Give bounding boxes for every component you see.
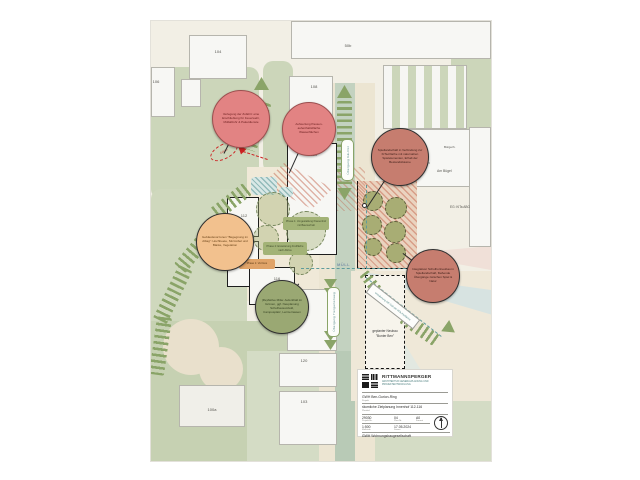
fence-line (366, 185, 367, 269)
building-number: 108 (305, 84, 323, 89)
firm-logo (362, 374, 378, 388)
annotation-text: Integrativer Schulhortneubau in Spiellan… (407, 263, 459, 289)
site-plan-sheet: 104 106 50b 108 110 112 114 116 118 120 … (150, 20, 492, 462)
date: 17.05.2024 (394, 425, 411, 429)
tree (362, 215, 382, 235)
plan-number-label: Plan-Nr. (394, 420, 402, 422)
phase-box-text: Phase 1: Vorzone (247, 262, 267, 265)
path-label-text: Übergang Tiergartenweg (332, 292, 336, 332)
phase-box: Phase 2: Erweiterung Freifläche nach Abr… (263, 242, 307, 255)
logo-square (371, 374, 378, 380)
annotation-text: Spiellandschaft in Verbindung zur KiTa-F… (372, 144, 428, 170)
north-arrow-icon (434, 416, 448, 430)
phase-box-text: Phase 2: Erweiterung Freifläche nach Abr… (265, 245, 305, 251)
logo-square (362, 382, 369, 388)
format-label: Format (416, 420, 423, 422)
client-name: GWH Wohnungsbaugesellschaft (362, 432, 450, 438)
annotation-text: Verlegung der Zufahrt: eine Erschließung… (213, 108, 269, 130)
annotation-bubble-schulhort: Integrativer Schulhortneubau in Spiellan… (406, 249, 460, 303)
client-label: Bauherr (362, 436, 370, 438)
firm-subtitle: ARCHITEKTUR GENERALPLANUNG UND PROJEKTEN… (382, 380, 446, 386)
path-label-capsule: Übergang GE-Ost (341, 139, 354, 181)
path-label-text: Übergang GE-Ost (346, 146, 350, 175)
annotation-bubble-zufahrt: Verlegung der Zufahrt: eine Erschließung… (212, 90, 270, 148)
project-number-label: Projekt-Nr. (362, 420, 372, 422)
building-number: 120 (295, 358, 313, 363)
annotation-bubble-pausenflaeche: Aufwertung Pausen- aufenthaltsfläche Was… (282, 102, 336, 156)
planned-building-label: geplanter Neubau "Bunter Ben" (368, 329, 402, 338)
fence-line (301, 268, 421, 269)
muell-label: MÜLL (337, 262, 350, 267)
annotation-text: (Re)Aktive Mitte: Aufenthalt im Grünen, … (256, 294, 308, 320)
phase-box: Phase 1: Umgestaltung Pausenhof mit Baum… (283, 217, 329, 230)
tree (385, 197, 407, 219)
logo-square (371, 382, 378, 388)
tree (384, 221, 406, 243)
building (291, 21, 491, 59)
plan-number: 04 (394, 416, 398, 420)
building-comb-courtyards (383, 65, 467, 129)
annotation-bubble-vorzonen: Gebäudevorzonen "Begegnung im Alltag": H… (196, 213, 254, 271)
titleblock: RITTMANNSPERGER ARCHITEKTUR GENERALPLANU… (357, 369, 453, 437)
leader-marker (362, 203, 367, 208)
path-label-capsule: Übergang Tiergartenweg (327, 287, 340, 337)
plan-title-label: Plantitel (362, 410, 370, 412)
building-number: 106 (150, 79, 165, 84)
building (151, 67, 175, 117)
logo-square (362, 374, 369, 380)
annotation-text: Aufwertung Pausen- aufenthaltsfläche Was… (283, 118, 335, 140)
annotation-bubble-spiellandschaft: Spiellandschaft in Verbindung zur KiTa-F… (371, 128, 429, 186)
annotation-text: Gebäudevorzonen "Begegnung im Alltag": H… (197, 231, 253, 253)
plan-title: räumliche Zielplanung Innenhof 112-116 (362, 405, 422, 409)
building-number: 100a (203, 407, 221, 412)
project-number: 29030 (362, 416, 371, 420)
project-name: GWH Ben-Gurion-Ring (362, 395, 397, 399)
page: 104 106 50b 108 110 112 114 116 118 120 … (0, 0, 640, 480)
building (179, 385, 245, 427)
building (469, 127, 491, 247)
format: A0 (416, 416, 420, 420)
building (189, 35, 247, 79)
north-needle-tip (439, 417, 443, 421)
project-label: Projekt (362, 400, 369, 402)
scale: 1:500 (362, 425, 371, 429)
building-number: 50b (339, 43, 357, 48)
kita-label: EG: KiTa ABG (449, 205, 471, 209)
phase-box-text: Phase 1: Umgestaltung Pausenhof mit Baum… (285, 220, 327, 226)
building (181, 79, 201, 107)
district-label: Am Bügel (437, 169, 452, 173)
building-number: 103 (295, 399, 313, 404)
firm-name: RITTMANNSPERGER (382, 374, 431, 379)
district-label: Bürgerh. (444, 145, 456, 149)
building-number: 104 (209, 49, 227, 54)
annotation-bubble-aktive-mitte: (Re)Aktive Mitte: Aufenthalt im Grünen, … (255, 280, 309, 334)
